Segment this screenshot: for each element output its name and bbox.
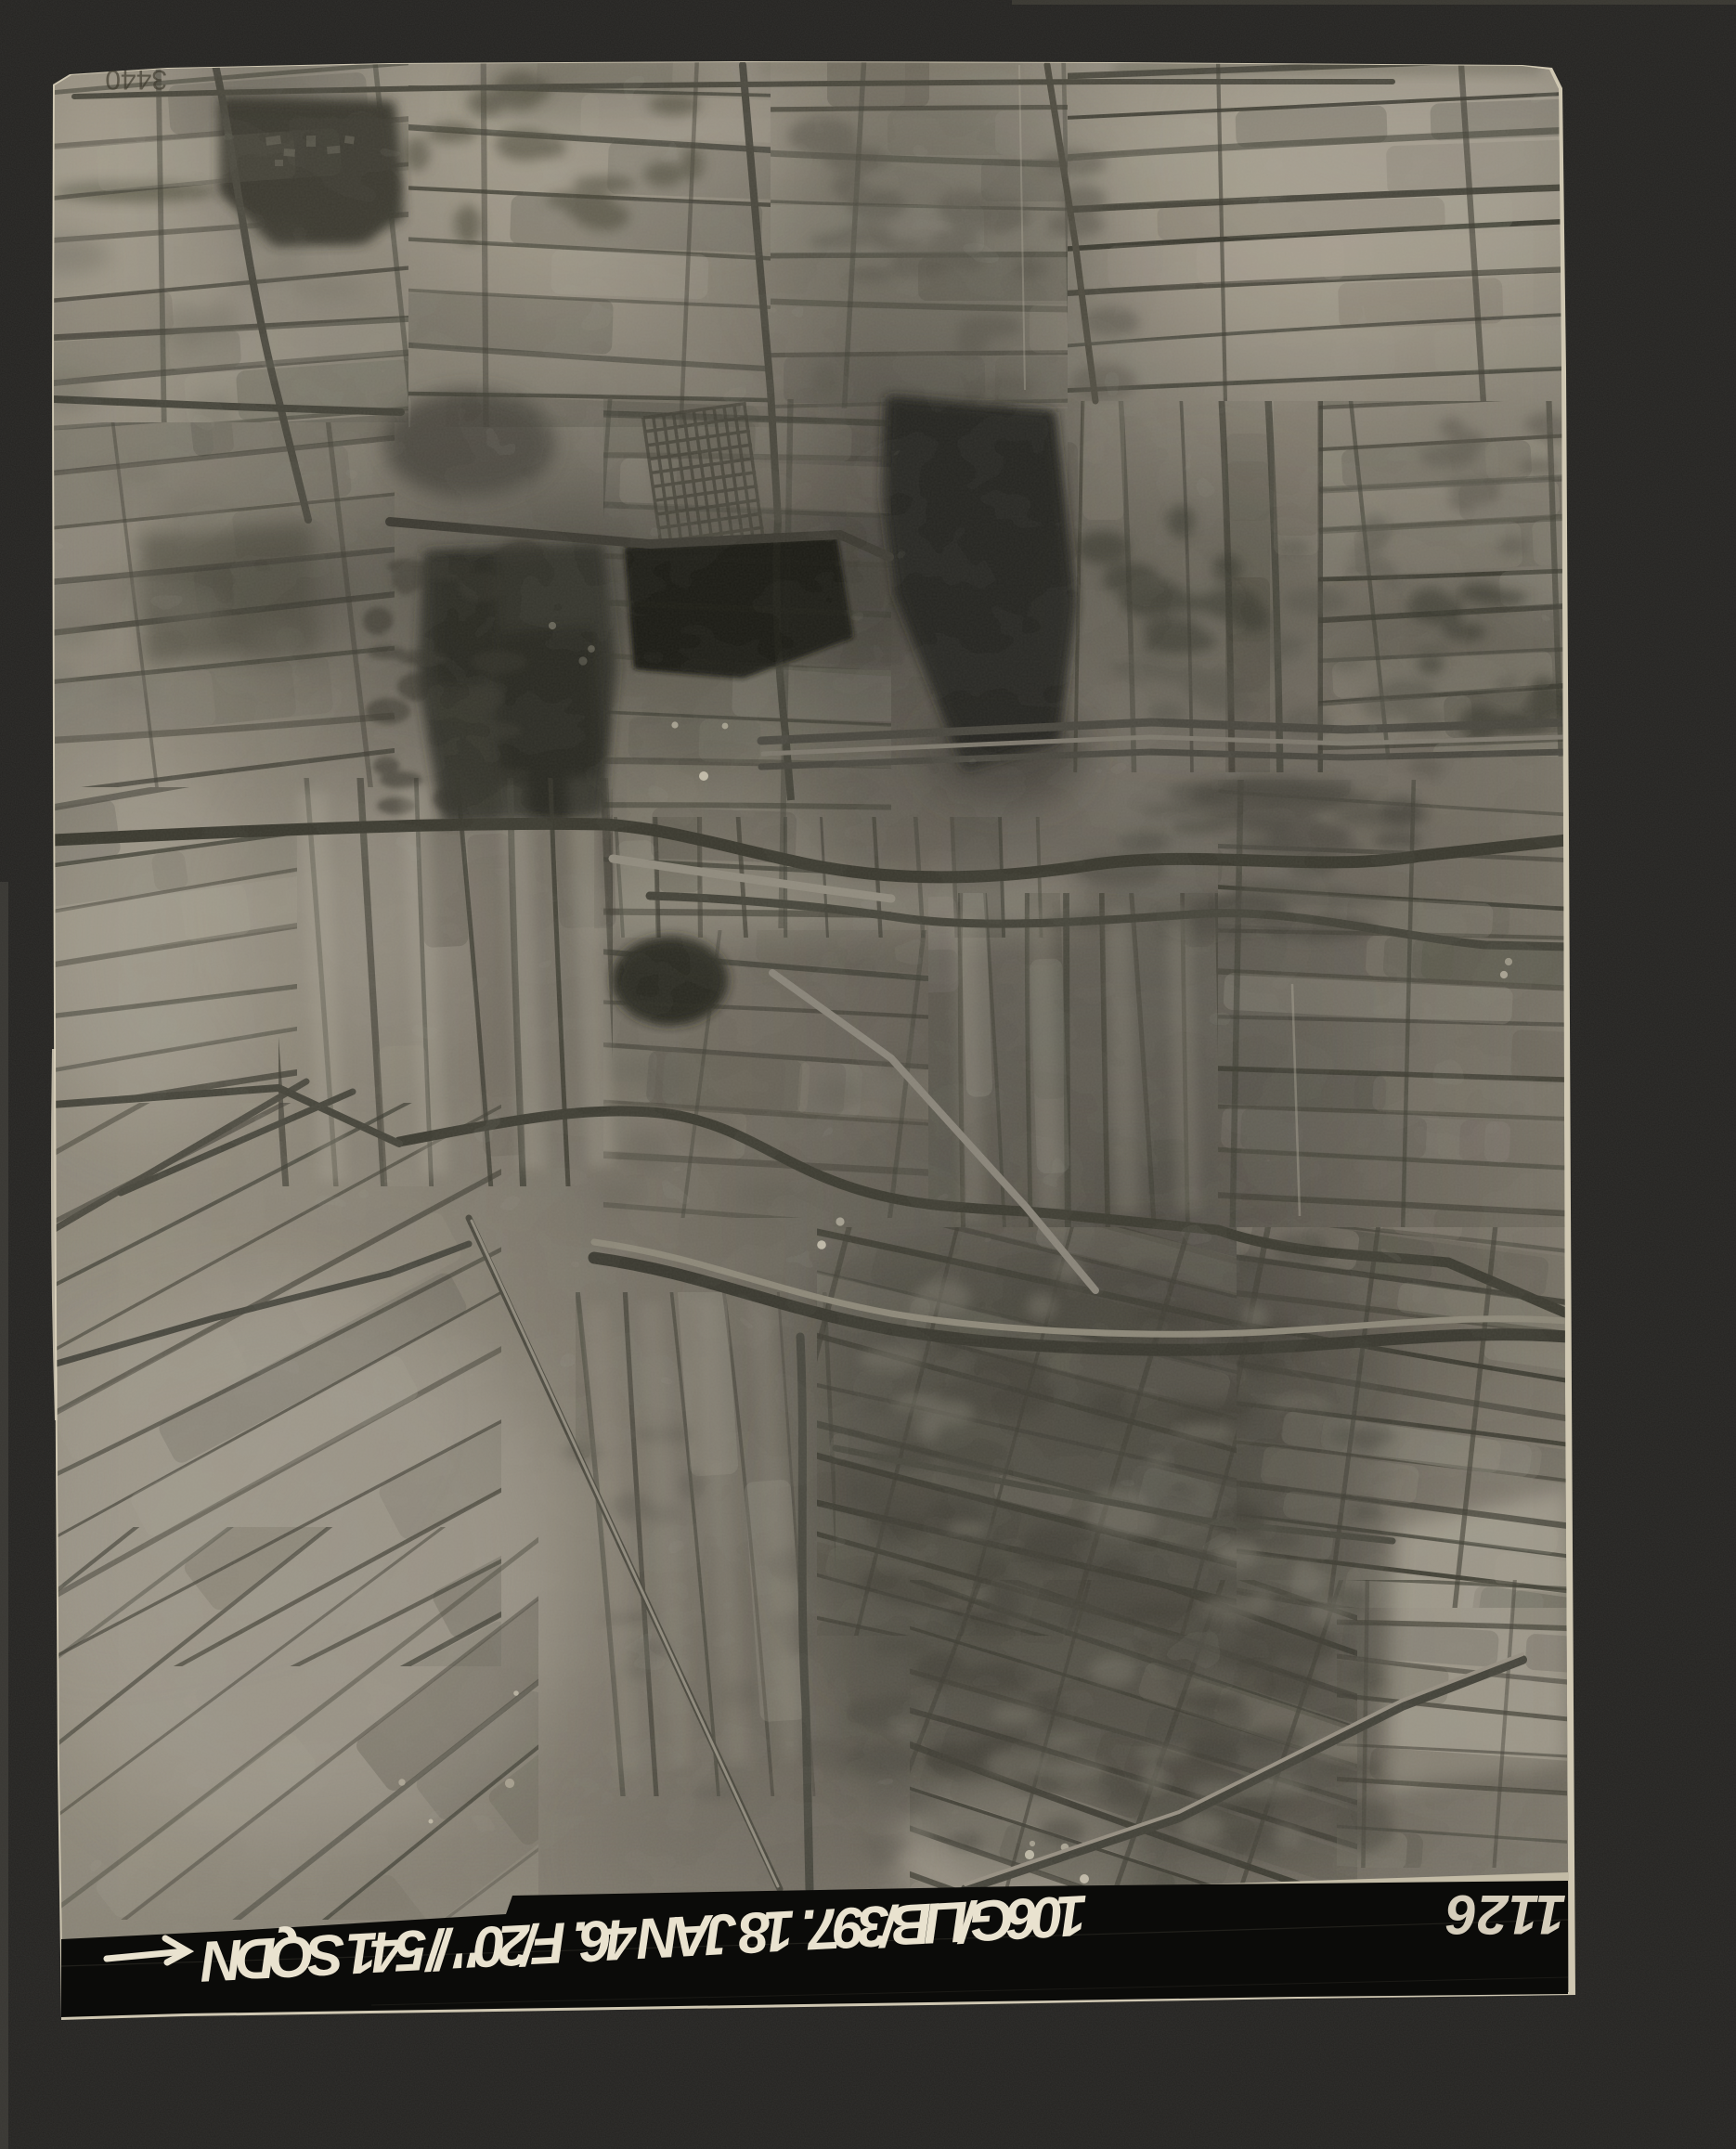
svg-text:1126: 1126 bbox=[1445, 1884, 1566, 1946]
svg-text:3440: 3440 bbox=[105, 64, 167, 95]
